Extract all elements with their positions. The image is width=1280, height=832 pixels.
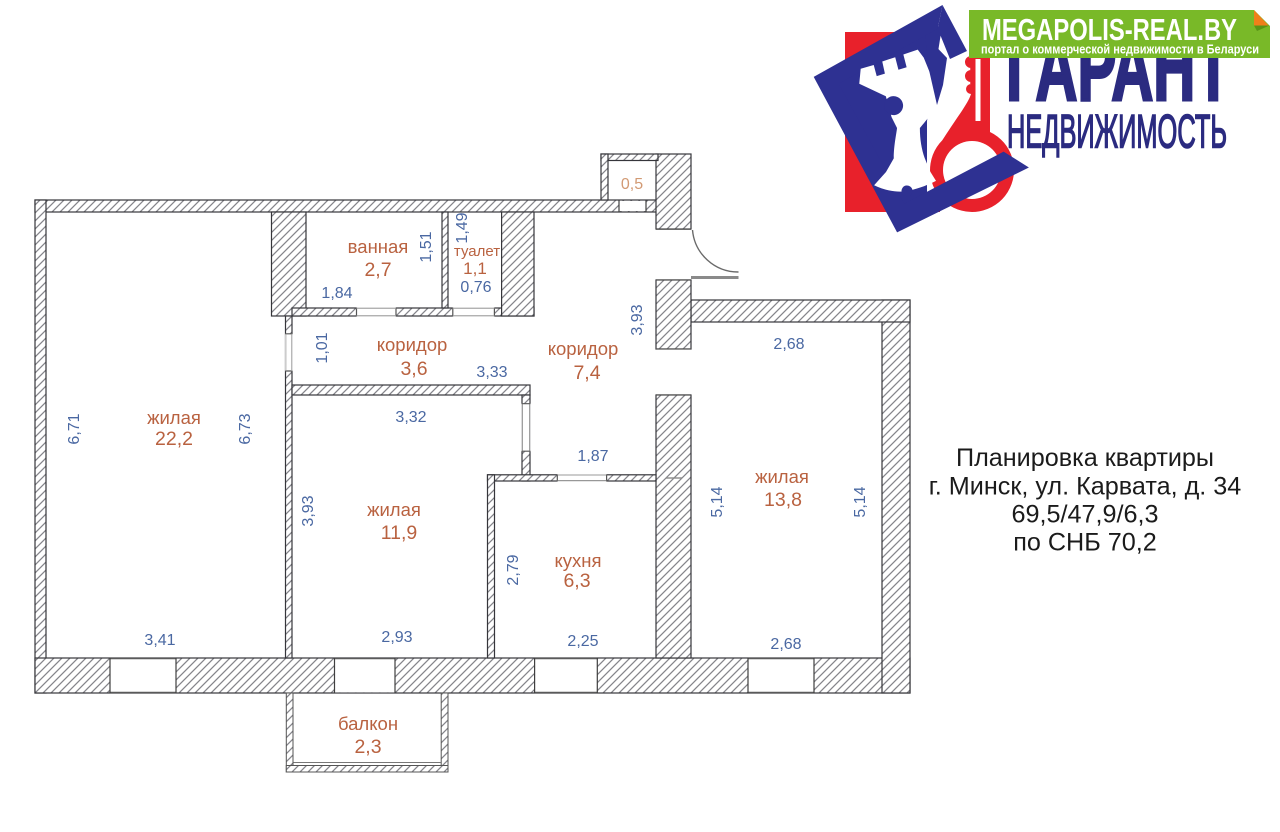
svg-text:кухня: кухня	[554, 550, 601, 571]
svg-text:5,14: 5,14	[852, 486, 869, 517]
svg-text:Планировка квартиры: Планировка квартиры	[956, 444, 1214, 472]
svg-text:13,8: 13,8	[764, 489, 802, 511]
svg-text:портал о коммерческой недвижим: портал о коммерческой недвижимости в Бел…	[981, 42, 1259, 57]
svg-text:2,7: 2,7	[364, 259, 391, 281]
svg-text:жилая: жилая	[367, 499, 421, 520]
svg-text:22,2: 22,2	[155, 428, 193, 450]
svg-text:3,33: 3,33	[476, 364, 507, 381]
svg-text:НЕДВИЖИМОСТЬ: НЕДВИЖИМОСТЬ	[1007, 105, 1227, 158]
svg-text:1,51: 1,51	[418, 231, 435, 262]
svg-text:2,93: 2,93	[381, 629, 412, 646]
svg-text:коридор: коридор	[377, 334, 448, 355]
svg-text:жилая: жилая	[755, 466, 809, 487]
svg-text:6,71: 6,71	[66, 413, 83, 444]
svg-text:1,1: 1,1	[463, 259, 487, 278]
svg-text:коридор: коридор	[548, 338, 619, 359]
svg-text:1,01: 1,01	[314, 332, 331, 363]
svg-text:3,41: 3,41	[144, 632, 175, 649]
svg-text:2,68: 2,68	[770, 636, 801, 653]
svg-text:3,6: 3,6	[400, 358, 427, 380]
svg-text:5,14: 5,14	[709, 486, 726, 517]
svg-text:3,93: 3,93	[629, 304, 646, 335]
svg-text:7,4: 7,4	[573, 362, 600, 384]
svg-text:по СНБ 70,2: по СНБ 70,2	[1013, 529, 1157, 557]
svg-text:туалет: туалет	[454, 243, 500, 260]
svg-text:2,3: 2,3	[354, 736, 381, 758]
svg-text:6,3: 6,3	[563, 570, 590, 592]
svg-text:жилая: жилая	[147, 407, 201, 428]
svg-text:3,93: 3,93	[300, 495, 317, 526]
svg-text:ванная: ванная	[348, 236, 409, 257]
svg-text:0,5: 0,5	[621, 176, 643, 193]
svg-text:2,25: 2,25	[567, 633, 598, 650]
svg-text:1,87: 1,87	[577, 448, 608, 465]
svg-text:3,32: 3,32	[395, 409, 426, 426]
svg-text:1,49: 1,49	[454, 212, 471, 243]
svg-text:69,5/47,9/6,3: 69,5/47,9/6,3	[1011, 501, 1158, 529]
svg-text:6,73: 6,73	[237, 413, 254, 444]
svg-text:балкон: балкон	[338, 713, 398, 734]
svg-text:0,76: 0,76	[460, 279, 491, 296]
svg-text:г. Минск, ул. Карвата, д. 34: г. Минск, ул. Карвата, д. 34	[929, 473, 1242, 501]
svg-text:11,9: 11,9	[381, 522, 418, 544]
svg-text:2,79: 2,79	[505, 554, 522, 585]
svg-text:1,84: 1,84	[321, 285, 352, 302]
svg-text:2,68: 2,68	[773, 336, 804, 353]
